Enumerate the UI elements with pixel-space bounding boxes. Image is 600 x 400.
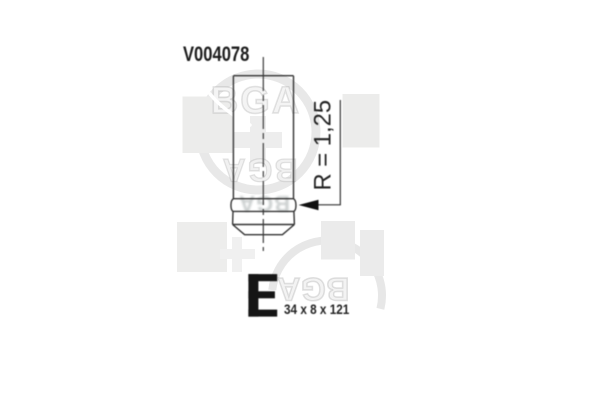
- svg-text:R = 1,25: R = 1,25: [309, 100, 336, 191]
- svg-text:34 x 8 x 121: 34 x 8 x 121: [284, 301, 349, 317]
- svg-text:BGA: BGA: [238, 191, 290, 216]
- svg-text:V004078: V004078: [183, 43, 249, 66]
- svg-text:BGA: BGA: [211, 80, 301, 122]
- svg-text:BGA: BGA: [220, 152, 297, 188]
